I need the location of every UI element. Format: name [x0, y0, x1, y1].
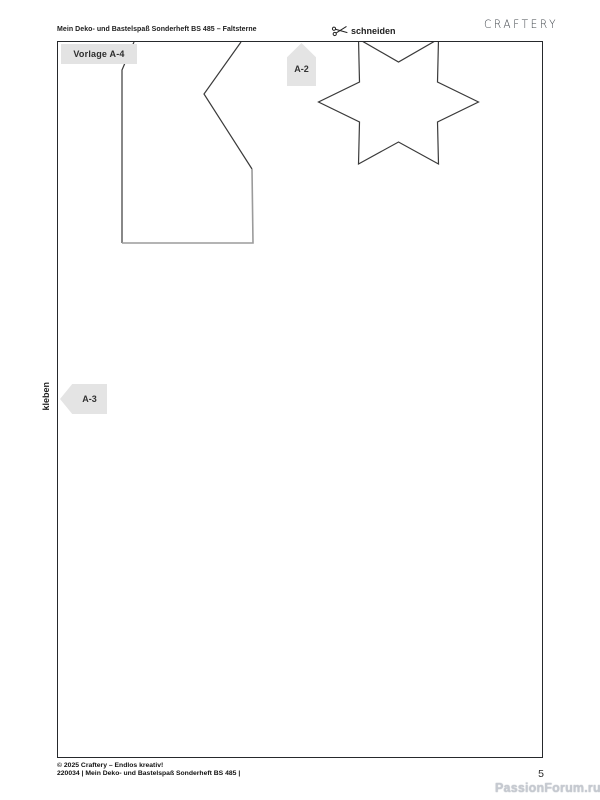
footer-issue-line: 220034 | Mein Deko- und Bastelspaß Sonde… [57, 770, 240, 777]
fold-shape-right-edge [204, 42, 252, 169]
arrow-a2-label: A-2 [287, 64, 316, 74]
page-header-title: Mein Deko- und Bastelspaß Sonderheft BS … [57, 26, 257, 33]
glue-label: kleben [41, 382, 51, 411]
fold-shape-fold-line [122, 169, 253, 243]
watermark-text: PassionForum.ru [495, 781, 600, 795]
star-outline [319, 42, 479, 164]
cut-instruction: schneiden [332, 25, 396, 36]
footer-copyright: © 2025 Craftery – Endlos kreativ! [57, 762, 163, 769]
scissors-icon [331, 24, 348, 37]
craftery-logo: CRAFTERY [484, 18, 558, 31]
page-number: 5 [534, 768, 544, 780]
vorlage-label-box: Vorlage A-4 [61, 44, 137, 64]
template-sheet-outline: Vorlage A-4 A-2 A-3 [57, 41, 543, 758]
vorlage-label: Vorlage A-4 [73, 49, 124, 59]
arrow-a3-label: A-3 [72, 384, 107, 414]
template-page: Mein Deko- und Bastelspaß Sonderheft BS … [0, 0, 600, 800]
fold-shape-left-edge [122, 42, 134, 243]
template-shapes [58, 42, 542, 757]
cut-label: schneiden [351, 26, 396, 36]
